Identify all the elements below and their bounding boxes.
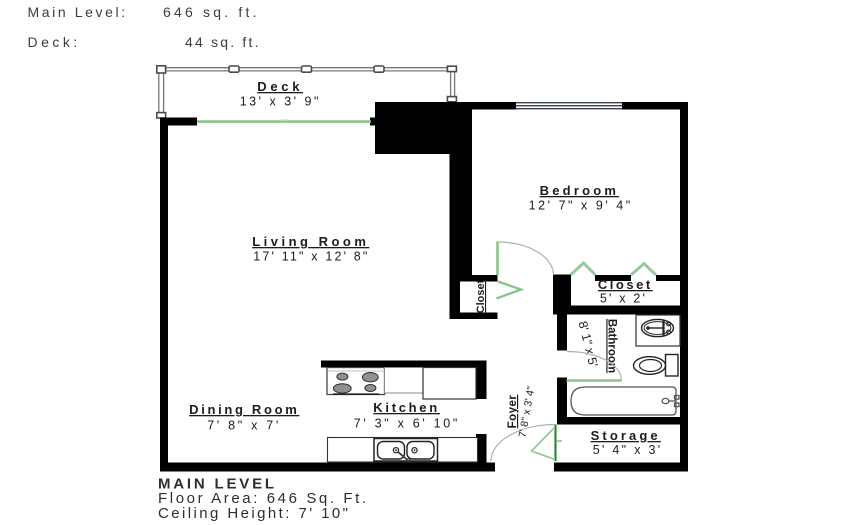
svg-text:7' 8" x 7': 7' 8" x 7' <box>207 419 281 433</box>
svg-text:7' 3" x 6' 10": 7' 3" x 6' 10" <box>354 417 460 431</box>
svg-text:Deck:: Deck: <box>28 34 81 50</box>
svg-text:Closet: Closet <box>475 279 487 313</box>
svg-text:Bedroom: Bedroom <box>540 183 619 198</box>
svg-text:646 sq. ft.: 646 sq. ft. <box>163 4 260 20</box>
svg-text:Bathroom: Bathroom <box>606 319 618 373</box>
svg-text:Kitchen: Kitchen <box>373 400 440 415</box>
svg-text:Storage: Storage <box>591 428 661 443</box>
svg-text:5' 4" x 3': 5' 4" x 3' <box>593 443 663 457</box>
svg-text:Living Room: Living Room <box>252 234 369 249</box>
svg-text:44 sq. ft.: 44 sq. ft. <box>185 34 261 50</box>
svg-text:Foyer: Foyer <box>507 395 519 429</box>
svg-text:Dining Room: Dining Room <box>189 402 299 417</box>
svg-text:5' x 2': 5' x 2' <box>600 292 647 306</box>
svg-text:13' x 3' 9": 13' x 3' 9" <box>240 95 321 109</box>
svg-text:Main Level:: Main Level: <box>28 4 128 20</box>
svg-text:Closet: Closet <box>598 277 653 292</box>
svg-text:17' 11" x 12' 8": 17' 11" x 12' 8" <box>253 250 369 264</box>
svg-text:12' 7" x 9' 4": 12' 7" x 9' 4" <box>529 199 633 213</box>
svg-text:Ceiling Height: 7' 10": Ceiling Height: 7' 10" <box>158 505 350 522</box>
svg-text:Deck: Deck <box>257 79 303 94</box>
